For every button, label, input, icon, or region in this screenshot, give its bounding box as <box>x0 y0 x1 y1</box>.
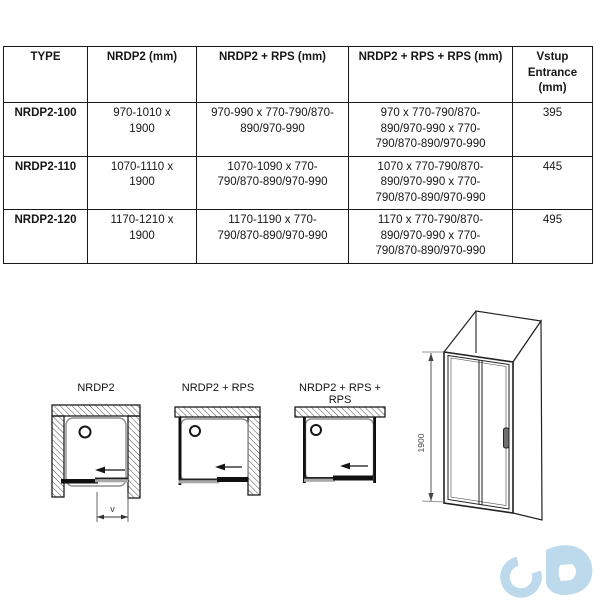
entrance-dim-label: v <box>110 504 115 514</box>
cell-nrdp2-rps: 1170-1190 x 770-790/870-890/970-990 <box>197 210 349 264</box>
dim-arrow-right <box>121 515 128 520</box>
cell-type: NRDP2-100 <box>4 103 88 157</box>
plan-view-label: NRDP2 <box>46 382 146 394</box>
wall-hatch-left <box>52 416 64 497</box>
header-nrdp2-rps: NRDP2 + RPS (mm) <box>197 47 349 103</box>
sliding-door-panel <box>217 477 248 482</box>
drain-circle <box>311 425 321 435</box>
door-handle <box>504 428 510 448</box>
drain-circle <box>190 426 200 436</box>
shower-tray <box>66 418 126 486</box>
cell-nrdp2: 1070-1110 x 1900 <box>88 156 197 210</box>
dimension-table: TYPE NRDP2 (mm) NRDP2 + RPS (mm) NRDP2 +… <box>3 46 593 264</box>
side-panel-left <box>179 417 182 485</box>
fixed-panel-shadow <box>95 479 128 482</box>
cell-nrdp2-rps: 1070-1090 x 770-790/870-890/970-990 <box>197 156 349 210</box>
plan-view-label: NRDP2 + RPS <box>168 382 268 394</box>
height-dim-label: 1900 <box>416 433 426 452</box>
plan-view-nrdp2-rps <box>170 400 270 510</box>
elevation-3d-view: 1900 <box>408 300 600 555</box>
fixed-panel-profile <box>304 477 335 479</box>
header-nrdp2-rps-rps: NRDP2 + RPS + RPS (mm) <box>349 47 513 103</box>
header-type: TYPE <box>4 47 88 103</box>
fixed-panel-profile <box>95 478 128 480</box>
sliding-door-panel <box>333 476 373 481</box>
table-row: NRDP2-120 1170-1210 x 1900 1170-1190 x 7… <box>4 210 593 264</box>
wall-hatch-top <box>52 405 140 416</box>
wall-hatch-right <box>248 417 260 495</box>
cell-entrance: 445 <box>513 156 593 210</box>
cell-nrdp2-rps-rps: 1070 x 770-790/870-890/970-990 x 770-790… <box>349 156 513 210</box>
fixed-panel-profile <box>179 479 220 481</box>
wall-hatch-top <box>175 407 260 417</box>
cell-nrdp2: 1170-1210 x 1900 <box>88 210 197 264</box>
side-panel-right <box>373 417 376 483</box>
wall-hatch-top <box>295 407 385 417</box>
cell-type: NRDP2-110 <box>4 156 88 210</box>
height-dimension <box>422 352 444 502</box>
cell-nrdp2-rps-rps: 970 x 770-790/870-890/970-990 x 770-790/… <box>349 103 513 157</box>
header-nrdp2: NRDP2 (mm) <box>88 47 197 103</box>
product-spec-sheet: TYPE NRDP2 (mm) NRDP2 + RPS (mm) NRDP2 +… <box>0 0 600 600</box>
fixed-panel-shadow <box>179 480 220 483</box>
brand-logo-icon <box>500 538 600 600</box>
table-row: NRDP2-100 970-1010 x 1900 970-990 x 770-… <box>4 103 593 157</box>
drain-circle <box>80 427 91 438</box>
side-panel-left <box>303 417 306 483</box>
cell-nrdp2-rps-rps: 1170 x 770-790/870-890/970-990 x 770-790… <box>349 210 513 264</box>
sliding-door-panel <box>61 479 98 484</box>
cell-nrdp2: 970-1010 x 1900 <box>88 103 197 157</box>
cell-entrance: 495 <box>513 210 593 264</box>
table-header-row: TYPE NRDP2 (mm) NRDP2 + RPS (mm) NRDP2 +… <box>4 47 593 103</box>
cell-nrdp2-rps: 970-990 x 770-790/870-890/970-990 <box>197 103 349 157</box>
plan-view-nrdp2-rps-rps <box>292 400 392 505</box>
fixed-panel-shadow <box>304 479 335 482</box>
logo-c-glyph <box>501 557 541 597</box>
cell-entrance: 395 <box>513 103 593 157</box>
wall-hatch-right <box>128 416 140 498</box>
plan-view-nrdp2: v <box>48 400 148 532</box>
dim-arrow-left <box>97 515 104 520</box>
table-row: NRDP2-110 1070-1110 x 1900 1070-1090 x 7… <box>4 156 593 210</box>
header-entrance: Vstup Entrance (mm) <box>513 47 593 103</box>
cell-type: NRDP2-120 <box>4 210 88 264</box>
